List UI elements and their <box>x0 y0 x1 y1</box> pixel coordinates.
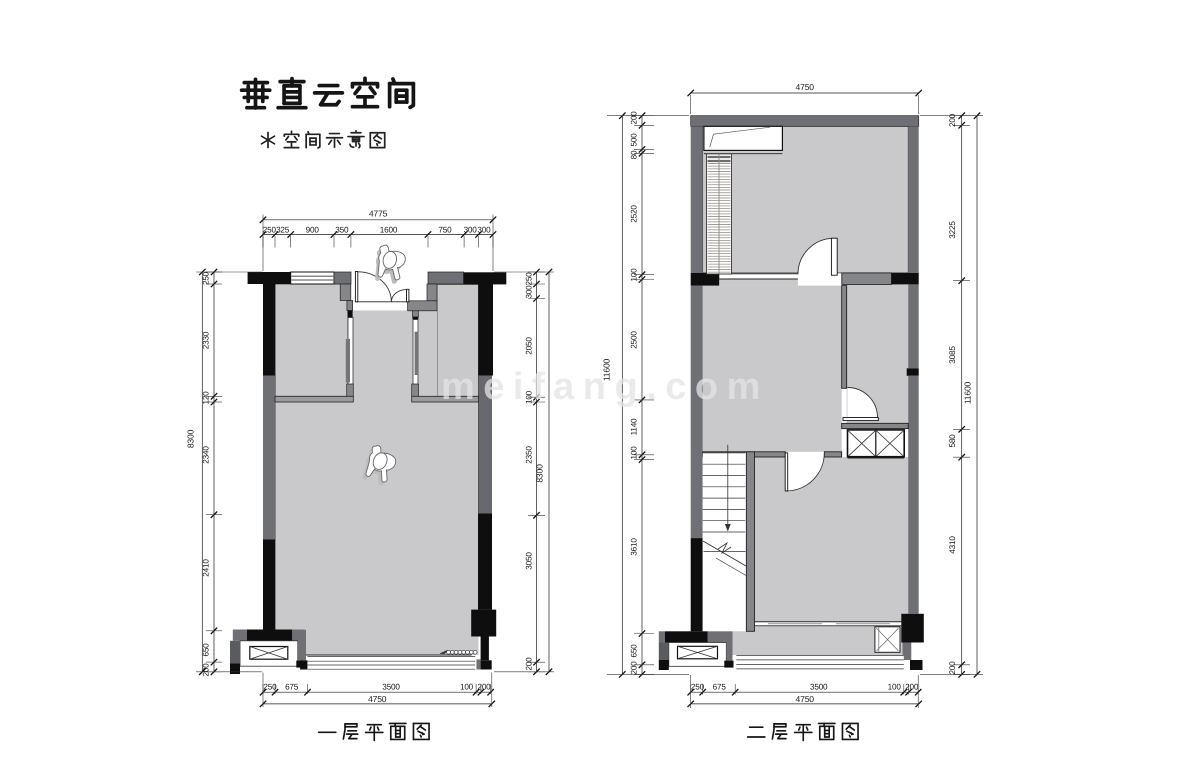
svg-text:80: 80 <box>630 150 639 159</box>
svg-text:900: 900 <box>306 226 320 235</box>
svg-text:2330: 2330 <box>202 331 211 349</box>
svg-text:350: 350 <box>335 226 349 235</box>
svg-text:3500: 3500 <box>382 683 400 692</box>
svg-text:3225: 3225 <box>948 221 957 239</box>
svg-text:300: 300 <box>477 226 491 235</box>
svg-text:3085: 3085 <box>948 346 957 364</box>
svg-text:4310: 4310 <box>948 536 957 554</box>
svg-text:4750: 4750 <box>796 82 815 92</box>
svg-text:200: 200 <box>948 661 957 675</box>
svg-text:3500: 3500 <box>810 683 828 692</box>
svg-text:4750: 4750 <box>796 694 815 704</box>
svg-text:2350: 2350 <box>525 446 534 464</box>
svg-text:3610: 3610 <box>630 538 639 556</box>
svg-text:meifang.com: meifang.com <box>441 366 769 408</box>
svg-text:4775: 4775 <box>369 209 388 219</box>
svg-text:11600: 11600 <box>963 381 973 404</box>
svg-text:675: 675 <box>285 683 299 692</box>
svg-text:2050: 2050 <box>525 337 534 355</box>
svg-text:750: 750 <box>438 226 452 235</box>
svg-text:2500: 2500 <box>630 331 639 349</box>
svg-text:200: 200 <box>948 113 957 127</box>
svg-text:100: 100 <box>630 446 639 460</box>
svg-text:100: 100 <box>888 683 902 692</box>
svg-text:120: 120 <box>202 391 211 405</box>
svg-text:650: 650 <box>630 644 639 658</box>
svg-text:250: 250 <box>263 226 277 235</box>
svg-text:650: 650 <box>202 643 211 657</box>
svg-text:580: 580 <box>948 434 957 448</box>
svg-text:250: 250 <box>525 272 534 286</box>
svg-text:2340: 2340 <box>202 446 211 464</box>
svg-text:200: 200 <box>905 683 919 692</box>
svg-text:2410: 2410 <box>202 559 211 577</box>
svg-text:200: 200 <box>477 683 491 692</box>
svg-text:200: 200 <box>202 663 211 677</box>
svg-text:200: 200 <box>525 657 534 671</box>
svg-text:100: 100 <box>460 683 474 692</box>
svg-text:675: 675 <box>713 683 727 692</box>
svg-text:200: 200 <box>630 111 639 125</box>
svg-text:300: 300 <box>525 285 534 299</box>
svg-text:1140: 1140 <box>630 418 639 435</box>
svg-text:4750: 4750 <box>368 694 387 704</box>
svg-text:250: 250 <box>202 271 211 285</box>
svg-text:1600: 1600 <box>380 226 398 235</box>
svg-text:325: 325 <box>276 226 290 235</box>
svg-text:2520: 2520 <box>630 205 639 223</box>
svg-text:3050: 3050 <box>525 552 534 570</box>
svg-text:500: 500 <box>630 133 639 147</box>
svg-text:8300: 8300 <box>535 464 545 483</box>
svg-text:200: 200 <box>630 661 639 675</box>
svg-text:300: 300 <box>464 226 478 235</box>
svg-text:8300: 8300 <box>186 429 196 448</box>
